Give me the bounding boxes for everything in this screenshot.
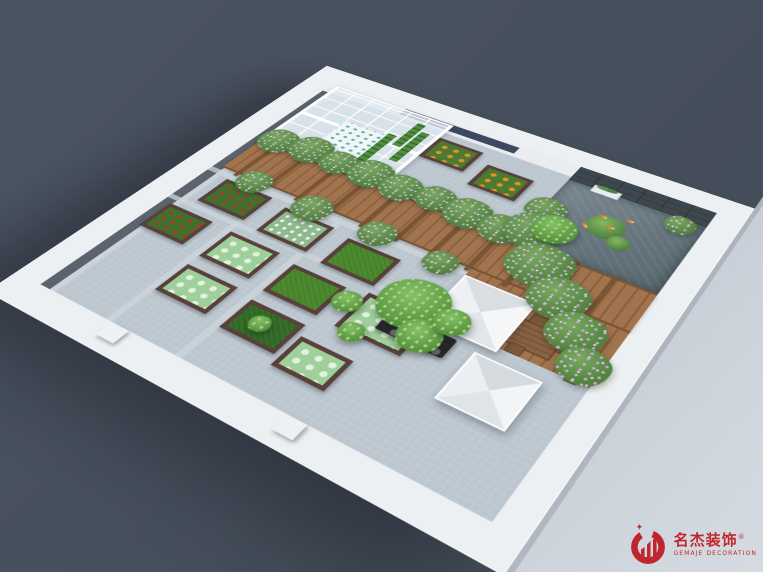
koi-fish xyxy=(625,219,635,224)
scene-3d xyxy=(0,0,763,572)
brand-logo: ✦ 名杰装饰® GEMAJE DECORATION xyxy=(629,524,757,566)
white-canopy xyxy=(434,352,543,432)
registered-mark: ® xyxy=(738,533,746,541)
brand-logo-icon: ✦ xyxy=(629,524,669,566)
logo-building-bars xyxy=(641,535,657,560)
brand-name-chinese: 名杰装饰® xyxy=(674,533,757,549)
star-icon: ✦ xyxy=(636,524,644,533)
greenhouse-grow-racks xyxy=(338,88,451,127)
rooftop-plan xyxy=(0,66,755,572)
brand-name-english: GEMAJE DECORATION xyxy=(674,551,757,557)
render-canvas: ✦ 名杰装饰® GEMAJE DECORATION xyxy=(0,0,763,572)
planter-bed-lawn xyxy=(320,238,401,286)
planter-bed-pumpkin xyxy=(467,165,534,202)
brand-logo-text: 名杰装饰® GEMAJE DECORATION xyxy=(674,533,757,557)
